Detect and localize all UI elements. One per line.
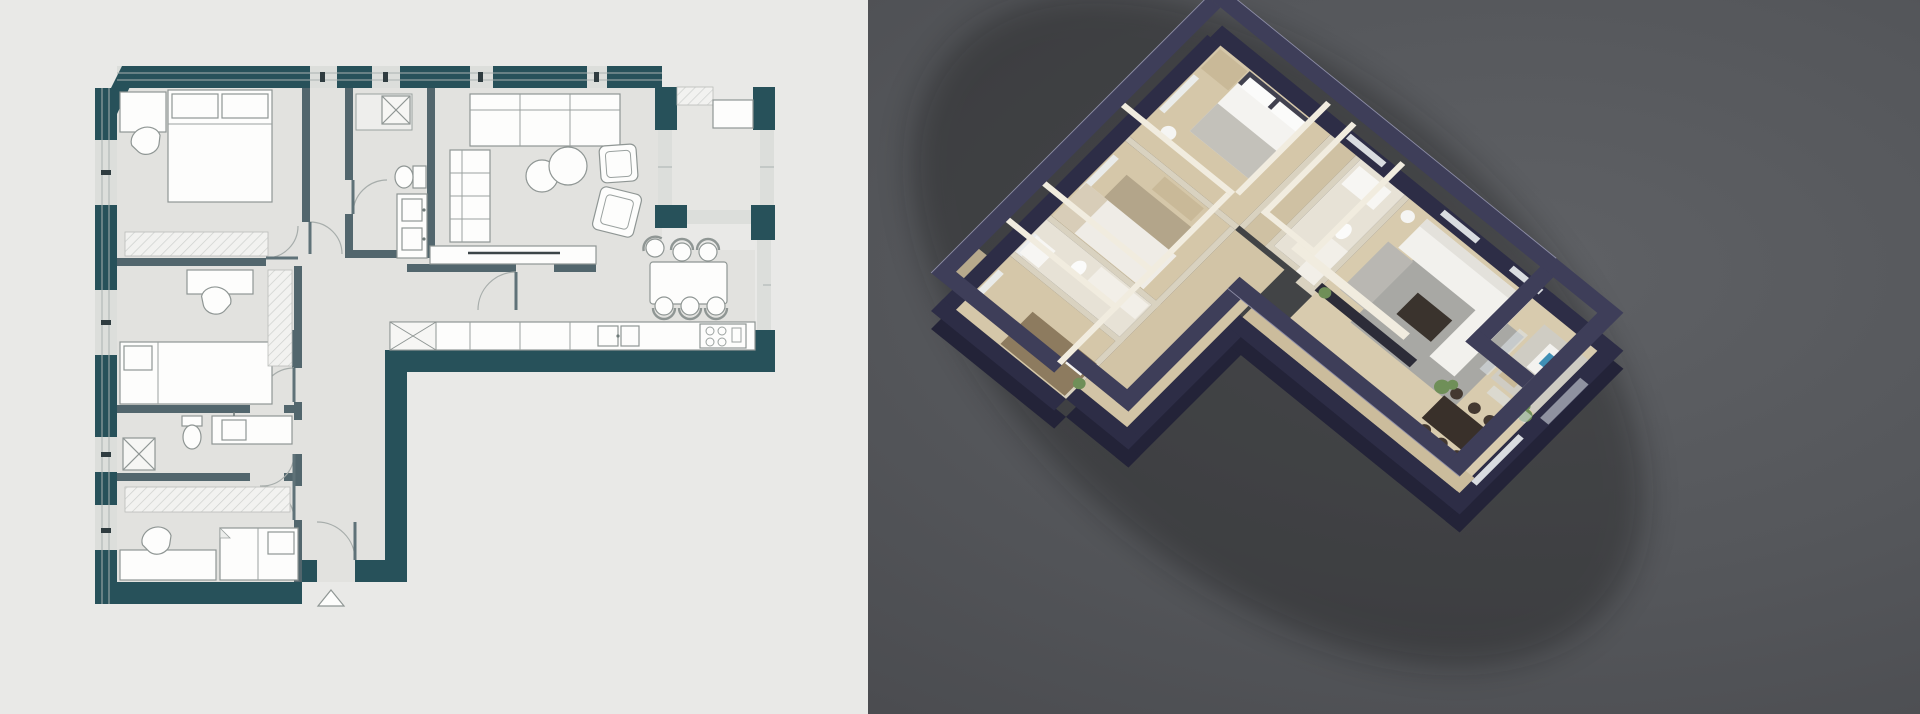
sink-1 bbox=[402, 199, 422, 221]
room-winter-garden bbox=[713, 100, 753, 128]
wardrobe bbox=[125, 487, 290, 512]
render-3d-panel bbox=[868, 0, 1920, 714]
bed bbox=[220, 528, 298, 580]
floor-plan-2d bbox=[0, 0, 868, 714]
desk bbox=[120, 550, 216, 580]
cooktop bbox=[700, 324, 746, 348]
coffee-table-2 bbox=[549, 147, 587, 185]
shower bbox=[382, 96, 410, 124]
entrance-triangle bbox=[318, 590, 344, 606]
tv-console bbox=[430, 246, 596, 264]
sink-2 bbox=[402, 228, 422, 250]
wardrobe bbox=[125, 232, 268, 256]
single-bed bbox=[120, 342, 272, 404]
screenshot-stage bbox=[0, 0, 1920, 714]
toilet bbox=[182, 416, 202, 449]
desk bbox=[120, 92, 166, 132]
loveseat bbox=[450, 150, 490, 242]
vestibule-right-wall bbox=[385, 352, 407, 582]
toilet bbox=[395, 166, 426, 188]
wardrobe-slider bbox=[292, 330, 302, 368]
pantry-xbox bbox=[390, 322, 436, 350]
wardrobe bbox=[268, 270, 292, 366]
room-kitchen bbox=[390, 322, 755, 350]
floor-plan-2d-panel bbox=[0, 0, 868, 714]
terrace-hatch bbox=[677, 87, 713, 105]
planter-bench bbox=[713, 100, 753, 128]
sink bbox=[222, 420, 246, 440]
sink bbox=[598, 326, 639, 346]
kitchen-bottom-wall bbox=[385, 350, 775, 372]
left-window-band bbox=[95, 88, 117, 604]
render-3d bbox=[868, 0, 1920, 714]
sofa bbox=[470, 94, 620, 146]
shower bbox=[123, 438, 155, 470]
